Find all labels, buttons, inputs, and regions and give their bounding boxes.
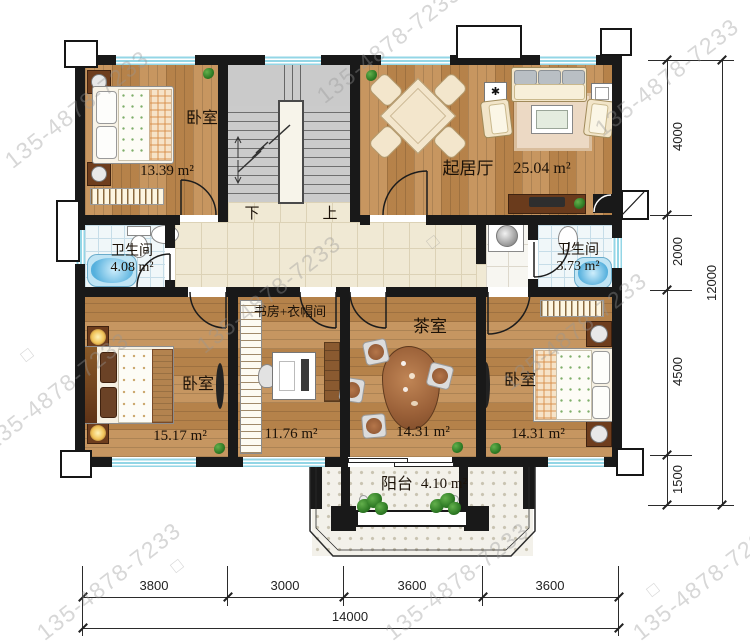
dimension-line [722, 60, 723, 505]
watermark: 135-4878-7233 [628, 517, 750, 643]
window [381, 55, 450, 65]
sofa-cushion [514, 70, 537, 85]
wall-pier [600, 28, 632, 56]
chimney-bay [456, 25, 522, 60]
tv-icon [529, 197, 565, 207]
wall [360, 215, 370, 225]
planter [430, 493, 462, 520]
armchair-seat [588, 103, 609, 135]
tea-set-dot [401, 361, 406, 366]
washer-drum [496, 225, 518, 247]
wall [336, 287, 350, 297]
room-area: 4.10 m² [421, 476, 467, 494]
bed [92, 86, 174, 164]
room-area: 3.73 m² [550, 259, 606, 275]
dimension-tick [650, 290, 692, 291]
wall-pier [60, 450, 92, 478]
dimension-value: 3800 [124, 578, 184, 593]
radiator [540, 300, 604, 317]
watermark-square-icon: □ [643, 579, 663, 601]
wall [340, 297, 350, 457]
bookshelf [324, 342, 340, 402]
wall [530, 287, 612, 297]
dimension-tick [343, 566, 344, 606]
dimension-tick [650, 215, 692, 216]
sliding-door [348, 457, 452, 467]
armchair-seat [488, 103, 509, 135]
balcony-wall [523, 467, 535, 509]
dimension-line [82, 628, 618, 629]
bed [82, 346, 174, 424]
planter [357, 493, 389, 520]
window [548, 457, 604, 467]
window [612, 238, 622, 268]
stair-flight [300, 106, 350, 202]
stair-rail-line [284, 65, 285, 103]
plant-icon [375, 502, 388, 515]
sofa-cushion [562, 70, 585, 85]
duvet [118, 89, 151, 161]
room-area: 14.31 m² [502, 426, 574, 442]
lamp-icon [90, 329, 106, 345]
room-name: 卧室 [168, 376, 228, 394]
wall [228, 297, 238, 457]
pillow [96, 126, 117, 159]
room-area: 4.08 m² [100, 260, 164, 276]
monitor-icon [301, 359, 309, 391]
nightstand [87, 326, 109, 348]
stair-flight [228, 106, 278, 202]
dimension-value: 1500 [670, 448, 685, 512]
plaid-throw [149, 89, 172, 161]
room-area: 14.31 m² [388, 424, 458, 440]
window [112, 457, 196, 467]
lamp-icon [91, 166, 107, 182]
tea-seat [362, 338, 390, 366]
window [265, 55, 321, 65]
nightstand [586, 421, 612, 447]
balcony-label: 阳台 4.10 m² [362, 476, 486, 494]
wall [476, 222, 486, 264]
duvet [118, 349, 154, 423]
dimension-value: 4500 [670, 340, 685, 404]
stair-stringer [278, 100, 304, 204]
radiator [90, 188, 164, 205]
room-name: 卧室 [492, 372, 548, 390]
dimension-value: 4000 [670, 105, 685, 169]
pillow [96, 91, 117, 124]
dimension-line [667, 60, 668, 505]
balcony-wall [310, 467, 322, 509]
dimension-total: 12000 [704, 248, 719, 318]
hallway-floor [175, 222, 476, 287]
stair-up-label: 上 [318, 205, 342, 223]
nightstand [87, 162, 111, 186]
coffee-table-glass [536, 110, 568, 129]
dimension-value: 3000 [255, 578, 315, 593]
wall [426, 215, 612, 225]
watermark-square-icon: □ [17, 344, 37, 366]
wall [226, 287, 300, 297]
wall [85, 287, 188, 297]
pillow [592, 351, 610, 384]
wall-pier [56, 200, 80, 262]
corner-flue [593, 194, 612, 213]
nightstand [586, 321, 612, 347]
sofa [511, 67, 587, 102]
wall [218, 65, 228, 222]
wall [528, 222, 538, 240]
lamp-icon [90, 425, 106, 441]
tea-set-dot [409, 373, 415, 379]
tea-seat-cushion [430, 366, 449, 385]
room-name: 茶室 [400, 318, 460, 336]
tea-seat-cushion [365, 417, 382, 434]
pillow [592, 386, 610, 419]
stair-down-label: 下 [240, 205, 264, 223]
coffee-table [531, 105, 573, 134]
window [116, 55, 195, 65]
dimension-value: 3600 [520, 578, 580, 593]
room-area: 11.76 m² [254, 426, 328, 442]
lamp-icon [590, 425, 608, 443]
dimension-total: 14000 [320, 609, 380, 624]
wall-pier [616, 448, 644, 476]
room-area: 13.39 m² [127, 163, 207, 179]
room-name: 卫生间 [546, 242, 610, 260]
window [540, 55, 596, 65]
tea-seat [361, 413, 387, 439]
desk-pad [279, 361, 295, 391]
desk [272, 352, 316, 400]
floor-plan-canvas: 下 上 卧室 13.39 m² ✱ 起居厅 25.04 m [0, 0, 750, 643]
dimension-value: 2000 [670, 220, 685, 284]
stair-rail-line [300, 65, 301, 103]
watermark-square-icon: □ [167, 555, 187, 577]
wall [476, 297, 486, 457]
lamp-icon [590, 325, 608, 343]
plant-icon [448, 502, 461, 515]
room-name: 阳台 [381, 476, 413, 494]
duvet [556, 350, 592, 420]
hallway-floor [476, 264, 486, 287]
balcony-wall [341, 467, 350, 511]
wall [386, 287, 488, 297]
dimension-tick [227, 566, 228, 606]
room-name: 书房+衣帽间 [238, 303, 342, 321]
room-name: 卧室 [172, 110, 232, 128]
balcony-column [331, 506, 356, 531]
wall [165, 222, 175, 248]
armchair [480, 98, 513, 138]
tea-seat-cushion [367, 343, 386, 362]
side-cabinet-inner [595, 87, 609, 100]
stair-rail-line [292, 65, 293, 103]
dimension-value: 3600 [382, 578, 442, 593]
tea-set-dot [403, 387, 408, 392]
nightstand [87, 422, 109, 444]
wall-pier [64, 40, 98, 68]
sofa-seat [514, 84, 585, 100]
headboard [83, 347, 97, 423]
room-area: 15.17 m² [142, 428, 218, 444]
dimension-line [82, 597, 618, 598]
room-name: 起居厅 [436, 160, 500, 178]
sofa-cushion [538, 70, 561, 85]
pillow [100, 352, 117, 383]
sliding-door-panel [394, 462, 454, 467]
dimension-tick [482, 566, 483, 606]
pillow [100, 387, 117, 418]
window [243, 457, 325, 467]
tea-set-dot [411, 401, 418, 406]
wall-pier [621, 190, 649, 220]
room-name: 卫生间 [100, 243, 164, 261]
wall [350, 65, 360, 222]
room-area: 25.04 m² [506, 161, 578, 177]
